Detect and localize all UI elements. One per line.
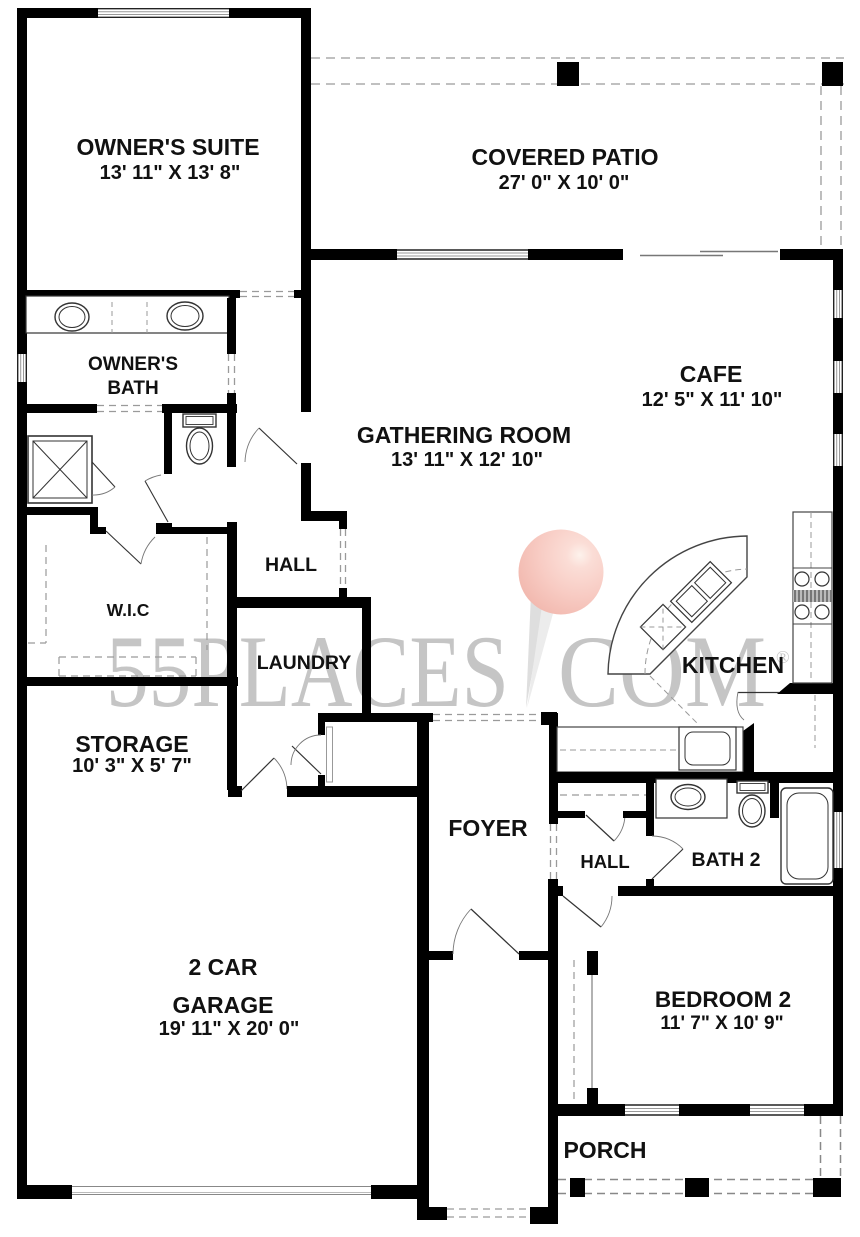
- svg-text:13' 11" X 12' 10": 13' 11" X 12' 10": [391, 449, 543, 471]
- svg-text:CAFE: CAFE: [680, 361, 743, 387]
- svg-text:BATH 2: BATH 2: [692, 849, 761, 871]
- svg-text:11' 7" X 10' 9": 11' 7" X 10' 9": [660, 1013, 783, 1034]
- svg-text:OWNER'S SUITE: OWNER'S SUITE: [76, 134, 259, 160]
- svg-text:BATH: BATH: [107, 378, 158, 399]
- svg-text:KITCHEN: KITCHEN: [682, 652, 784, 678]
- svg-text:LAUNDRY: LAUNDRY: [257, 652, 352, 674]
- svg-text:W.I.C: W.I.C: [107, 600, 150, 620]
- svg-text:FOYER: FOYER: [448, 815, 528, 841]
- svg-text:10' 3" X 5' 7": 10' 3" X 5' 7": [72, 755, 192, 777]
- svg-text:19' 11" X 20' 0": 19' 11" X 20' 0": [159, 1018, 300, 1040]
- svg-text:OWNER'S: OWNER'S: [88, 354, 178, 375]
- svg-text:HALL: HALL: [265, 554, 317, 576]
- svg-text:13' 11" X 13' 8": 13' 11" X 13' 8": [100, 162, 241, 184]
- svg-text:12' 5" X 11' 10": 12' 5" X 11' 10": [642, 389, 783, 411]
- svg-text:GATHERING ROOM: GATHERING ROOM: [357, 422, 571, 448]
- svg-text:HALL: HALL: [580, 851, 629, 872]
- svg-text:GARAGE: GARAGE: [173, 992, 274, 1018]
- svg-text:2 CAR: 2 CAR: [188, 954, 257, 980]
- svg-text:BEDROOM 2: BEDROOM 2: [655, 987, 791, 1012]
- svg-text:PORCH: PORCH: [563, 1137, 646, 1163]
- svg-text:STORAGE: STORAGE: [75, 731, 188, 757]
- svg-text:27' 0" X 10' 0": 27' 0" X 10' 0": [499, 172, 630, 194]
- svg-text:COVERED PATIO: COVERED PATIO: [472, 144, 659, 170]
